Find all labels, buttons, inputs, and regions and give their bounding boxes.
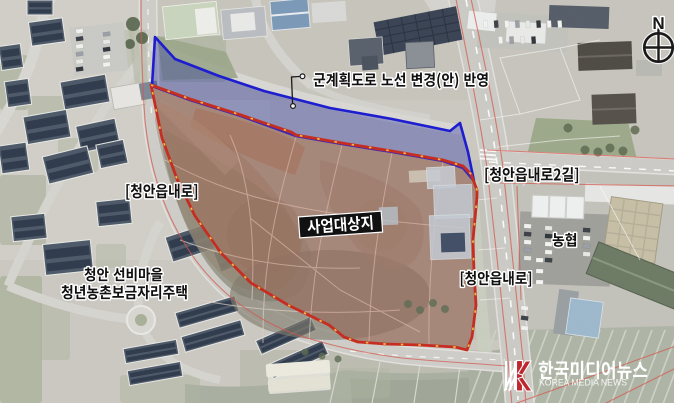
svg-text:KOREA MEDIA NEWS: KOREA MEDIA NEWS <box>539 378 627 389</box>
